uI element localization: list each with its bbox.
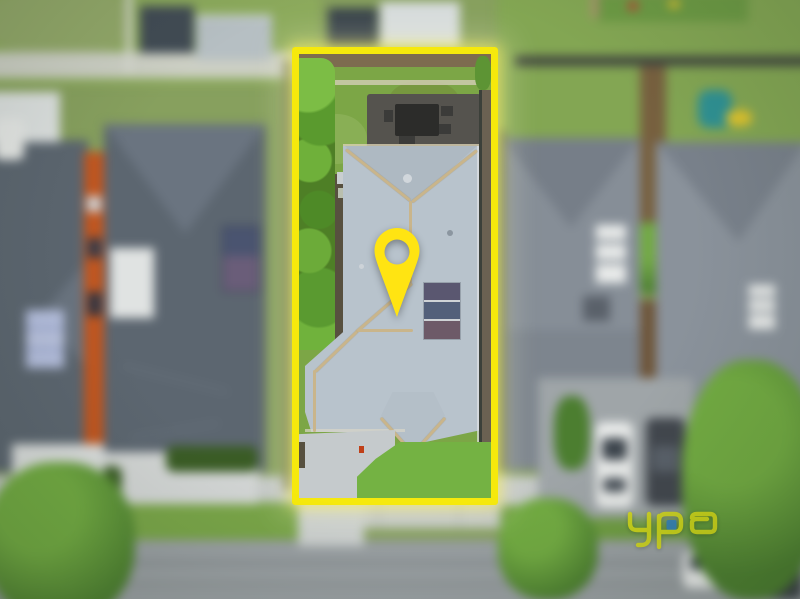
wall-detail xyxy=(87,196,101,212)
car-windshield xyxy=(602,438,627,460)
ypa-logo xyxy=(622,500,724,552)
driveway-crossing xyxy=(298,500,364,546)
street-tree xyxy=(0,462,135,599)
logo-blue-accent xyxy=(667,520,677,530)
fence xyxy=(515,56,800,66)
pergola-white xyxy=(110,248,154,318)
ridge-capping xyxy=(313,370,316,432)
chair xyxy=(399,136,415,144)
shed-dark xyxy=(140,6,194,53)
bushes xyxy=(554,396,590,470)
roof-box xyxy=(583,296,610,321)
side-fence xyxy=(479,90,491,442)
solar-panels xyxy=(423,282,461,340)
car-roof-highlight xyxy=(652,446,679,472)
window xyxy=(88,238,101,258)
chair xyxy=(439,124,451,134)
street-tree xyxy=(498,498,598,599)
shed-dark xyxy=(328,8,378,48)
logo-letter-p xyxy=(659,514,681,547)
roof-vent xyxy=(447,230,453,236)
solar-panel xyxy=(222,226,260,292)
toy-yellow xyxy=(726,110,752,126)
shed-white xyxy=(380,2,460,48)
ridge-capping xyxy=(357,329,413,332)
garden-pot xyxy=(299,442,305,468)
car-white-left-edge xyxy=(0,118,24,160)
flowers-yellow xyxy=(668,0,680,8)
location-pin-icon xyxy=(371,226,423,320)
bush xyxy=(475,56,491,90)
pole xyxy=(126,0,132,74)
car-rear-window xyxy=(603,478,626,492)
roof-vent xyxy=(403,174,412,183)
flowers-red xyxy=(628,2,638,10)
street-tree xyxy=(682,360,800,599)
logo-letter-y xyxy=(630,514,649,545)
roof-vent xyxy=(359,264,364,269)
logo-letter-a xyxy=(692,514,715,532)
skylights xyxy=(595,224,627,284)
outdoor-table xyxy=(395,104,439,136)
skylight-panel xyxy=(26,310,64,368)
aerial-photo: Blurred aerial drone photo of a suburban… xyxy=(0,0,800,599)
fence-shadow xyxy=(497,130,505,470)
grass-pale-patch xyxy=(0,0,130,52)
car-white xyxy=(596,422,633,508)
letterbox-red xyxy=(359,446,364,453)
hedge-row xyxy=(166,446,258,472)
window xyxy=(88,292,101,316)
hedge xyxy=(299,58,335,350)
chair xyxy=(441,106,453,116)
chair xyxy=(384,110,393,122)
shed-light xyxy=(196,15,272,60)
skylights xyxy=(748,284,776,330)
